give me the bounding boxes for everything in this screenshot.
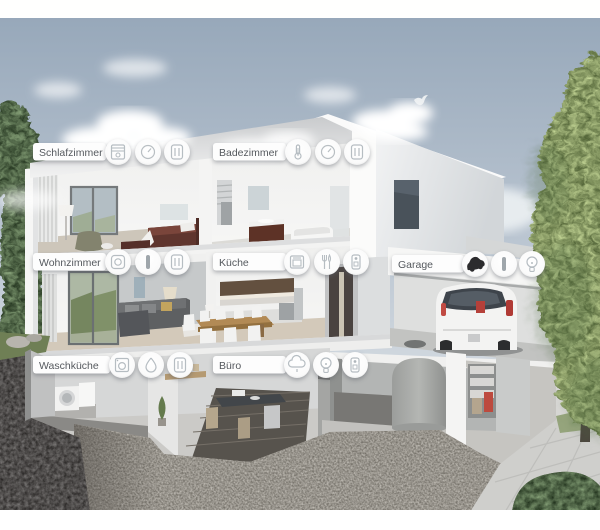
svg-text:Badezimmer: Badezimmer [219, 147, 278, 159]
svg-text:Waschküche: Waschküche [39, 360, 99, 372]
svg-text:Büro: Büro [219, 360, 241, 372]
svg-text:Küche: Küche [219, 257, 249, 269]
svg-text:Wohnzimmer: Wohnzimmer [39, 257, 101, 269]
svg-text:Schlafzimmer: Schlafzimmer [39, 147, 103, 159]
svg-text:Garage: Garage [398, 259, 433, 271]
